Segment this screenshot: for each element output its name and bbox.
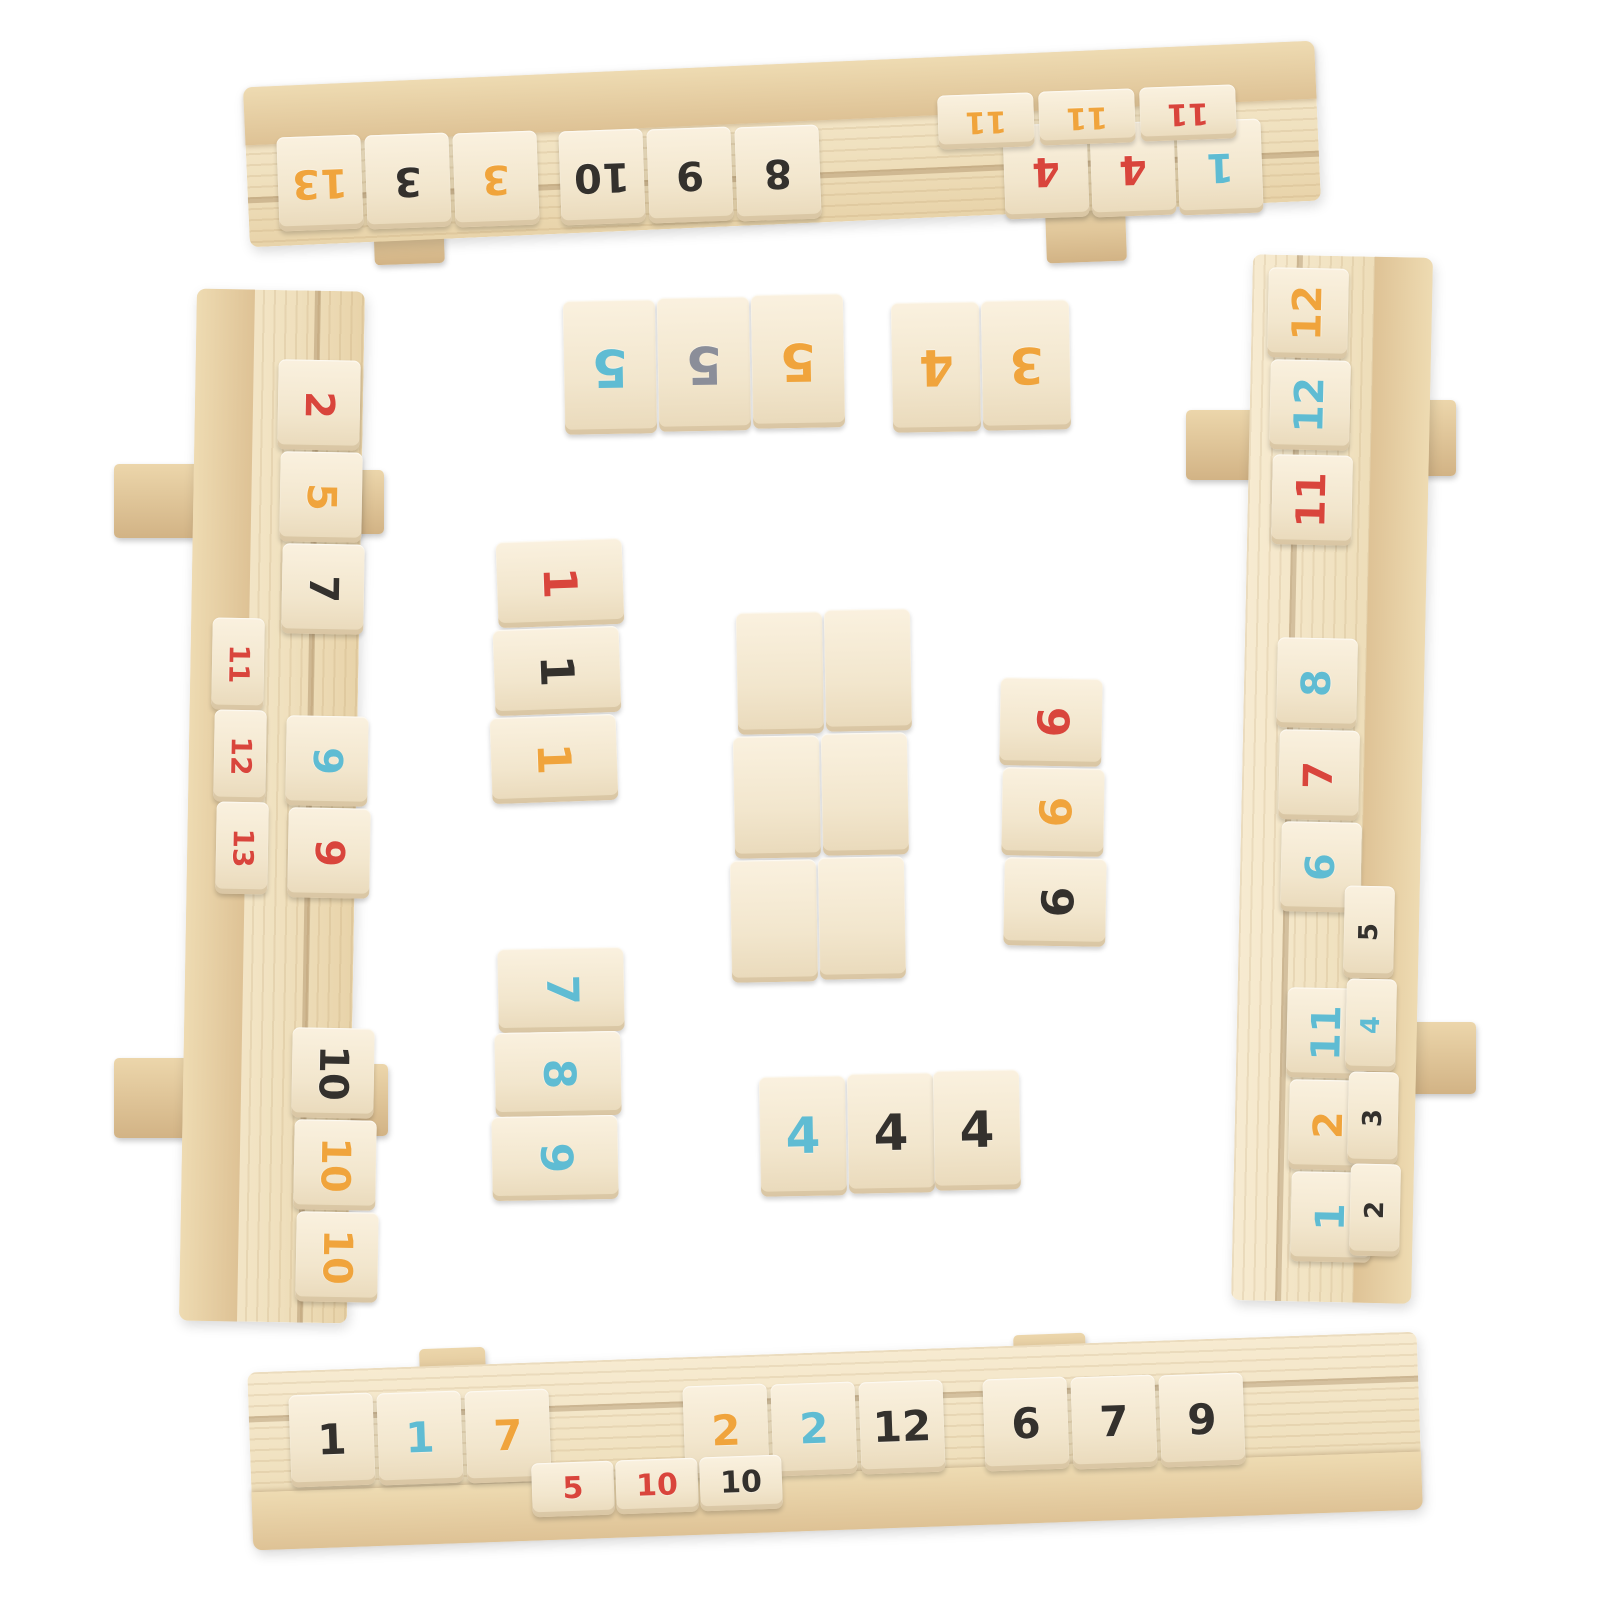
tile-blank-center-group-blank <box>733 735 821 858</box>
tile-2-left-rack-row: 2 <box>277 359 361 450</box>
tile-9-center-group-nines: 9 <box>1003 857 1107 947</box>
tile-number: 10 <box>720 1467 763 1498</box>
tile-number: 11 <box>1066 101 1109 132</box>
tile-10-bottom-rack-ledge: 10 <box>699 1455 783 1512</box>
tile-number: 6 <box>1301 853 1342 882</box>
tile-number: 3 <box>393 161 422 202</box>
tile-2-right-rack-side: 2 <box>1349 1163 1401 1256</box>
tile-9-bottom-rack-row: 9 <box>1158 1373 1245 1468</box>
tile-number: 5 <box>685 338 722 391</box>
tile-number: 9 <box>1033 886 1078 917</box>
tile-11-left-rack-side: 11 <box>211 618 265 711</box>
tile-9-center-group-seven-eight-nine: 9 <box>491 1115 618 1201</box>
tile-12-bottom-rack-row: 12 <box>858 1380 945 1475</box>
tile-number: 4 <box>873 1108 909 1159</box>
tile-number: 7 <box>493 1415 524 1458</box>
tile-9-center-group-nines: 9 <box>999 677 1103 767</box>
tile-number: 1 <box>1311 1203 1352 1232</box>
tile-12-right-rack-row: 12 <box>1269 359 1351 451</box>
tile-number: 13 <box>228 828 257 867</box>
tile-5-bottom-rack-ledge: 5 <box>531 1461 615 1518</box>
tile-number: 8 <box>1297 669 1338 698</box>
tile-blank-center-group-blank <box>730 859 818 982</box>
tile-number: 9 <box>1029 706 1074 737</box>
tile-4-center-group-fours: 4 <box>847 1072 935 1193</box>
tile-number: 4 <box>1358 1016 1384 1035</box>
tile-number: 5 <box>779 335 816 388</box>
tile-number: 11 <box>1291 472 1332 528</box>
tile-number: 8 <box>536 1058 581 1089</box>
tile-number: 3 <box>1008 340 1044 391</box>
tile-7-bottom-rack-row: 7 <box>1070 1375 1157 1470</box>
tile-7-right-rack-row: 7 <box>1278 729 1360 821</box>
tile-3-center-group-four-three: 3 <box>981 299 1071 431</box>
tile-7-left-rack-row: 7 <box>281 543 365 634</box>
tile-number: 12 <box>872 1405 932 1449</box>
tile-number: 10 <box>313 1045 354 1101</box>
tile-number: 1 <box>405 1417 436 1460</box>
tile-9-left-rack-row: 9 <box>285 715 369 806</box>
tile-number: 1 <box>536 566 583 600</box>
tile-number: 12 <box>226 736 255 775</box>
tile-number: 1 <box>317 1419 348 1462</box>
tile-number: 10 <box>636 1470 679 1501</box>
tile-number: 13 <box>291 162 348 204</box>
tile-4-center-group-fours: 4 <box>759 1075 847 1196</box>
tile-number: 6 <box>1011 1403 1042 1446</box>
tile-6-bottom-rack-row: 6 <box>982 1377 1069 1472</box>
tile-number: 10 <box>315 1137 356 1193</box>
tile-5-center-group-fives: 5 <box>751 293 845 429</box>
tile-number: 2 <box>1309 1111 1350 1140</box>
tile-4-right-rack-side: 4 <box>1345 978 1397 1071</box>
tile-11-top-rack-ledge: 11 <box>937 92 1035 149</box>
tile-5-right-rack-side: 5 <box>1343 885 1395 978</box>
tile-3-right-rack-side: 3 <box>1347 1071 1399 1164</box>
tile-number: 4 <box>1031 151 1060 192</box>
tile-number: 5 <box>301 483 341 512</box>
tile-number: 2 <box>711 1410 742 1453</box>
tile-11-top-rack-ledge: 11 <box>1139 84 1237 141</box>
tile-blank-center-group-blank <box>821 732 909 855</box>
tile-number: 9 <box>1031 796 1076 827</box>
tile-number: 9 <box>1187 1399 1218 1442</box>
tile-number: 5 <box>562 1474 584 1505</box>
tile-13-left-rack-side: 13 <box>215 802 269 895</box>
tile-11-top-rack-ledge: 11 <box>1038 88 1136 145</box>
tile-8-right-rack-row: 8 <box>1276 637 1358 729</box>
tile-number: 4 <box>785 1111 821 1162</box>
tile-9-left-rack-row: 9 <box>287 807 371 898</box>
tile-number: 11 <box>1167 97 1210 128</box>
tile-3-top-rack-row: 3 <box>364 133 451 230</box>
tile-blank-center-group-blank <box>818 856 906 979</box>
tile-number: 4 <box>918 342 954 393</box>
tile-11-right-rack-row: 11 <box>1271 454 1353 546</box>
tile-number: 9 <box>675 155 704 196</box>
tile-number: 4 <box>1118 149 1147 190</box>
tile-5-center-group-fives: 5 <box>657 296 751 432</box>
tile-number: 3 <box>481 159 510 200</box>
tile-10-bottom-rack-ledge: 10 <box>615 1458 699 1515</box>
tile-number: 8 <box>763 153 792 194</box>
tile-number: 3 <box>1360 1109 1386 1128</box>
tile-1-center-group-ones: 1 <box>496 538 625 628</box>
tile-number: 9 <box>533 1142 578 1173</box>
tile-number: 12 <box>1289 377 1330 433</box>
tile-number: 11 <box>965 105 1008 136</box>
tile-blank-center-group-blank <box>824 608 912 731</box>
tile-3-top-rack-row: 3 <box>452 131 539 228</box>
tile-4-center-group-four-three: 4 <box>891 301 981 433</box>
tile-1-center-group-ones: 1 <box>493 626 622 716</box>
tile-number: 5 <box>591 341 628 394</box>
tile-number: 7 <box>539 974 584 1005</box>
tile-number: 7 <box>303 575 343 604</box>
tile-number: 9 <box>309 839 349 868</box>
tile-8-top-rack-row: 8 <box>734 125 821 222</box>
tile-number: 11 <box>1306 1005 1347 1061</box>
tile-number: 5 <box>1356 923 1382 942</box>
wood-foot <box>114 464 200 538</box>
tile-number: 12 <box>1287 285 1328 341</box>
tile-9-top-rack-row: 9 <box>646 127 733 224</box>
tile-8-center-group-seven-eight-nine: 8 <box>494 1031 621 1117</box>
tile-number: 7 <box>1099 1401 1130 1444</box>
tile-13-top-rack-row: 13 <box>276 135 363 232</box>
tile-12-left-rack-side: 12 <box>213 710 267 803</box>
tile-number: 2 <box>799 1408 830 1451</box>
rummikub-game-photo: 1333109844111111125799101010111213121211… <box>0 0 1600 1600</box>
tile-4-center-group-fours: 4 <box>933 1069 1021 1190</box>
tile-number: 9 <box>307 747 347 776</box>
tile-5-center-group-fives: 5 <box>563 299 657 435</box>
tile-10-left-rack-row: 10 <box>295 1211 379 1302</box>
tile-10-left-rack-row: 10 <box>291 1027 375 1118</box>
tile-number: 10 <box>573 156 630 198</box>
tile-blank-center-group-blank <box>736 611 824 734</box>
tile-2-bottom-rack-row: 2 <box>770 1382 857 1477</box>
tile-1-bottom-rack-row: 1 <box>376 1391 463 1486</box>
tile-10-left-rack-row: 10 <box>293 1119 377 1210</box>
tile-9-center-group-nines: 9 <box>1001 767 1105 857</box>
tile-number: 7 <box>1299 761 1340 790</box>
tile-12-right-rack-row: 12 <box>1267 267 1349 359</box>
tile-number: 1 <box>530 742 577 776</box>
tile-number: 2 <box>299 391 339 420</box>
tile-1-bottom-rack-row: 1 <box>288 1393 375 1488</box>
tile-number: 11 <box>224 644 253 683</box>
tile-5-left-rack-row: 5 <box>279 451 363 542</box>
tile-10-top-rack-row: 10 <box>558 129 645 226</box>
tile-number: 4 <box>959 1105 995 1156</box>
tile-number: 1 <box>533 654 580 688</box>
tile-1-center-group-ones: 1 <box>490 714 619 804</box>
tile-number: 2 <box>1362 1201 1388 1220</box>
tile-number: 10 <box>317 1229 358 1285</box>
tile-number: 1 <box>1205 147 1234 188</box>
tile-7-center-group-seven-eight-nine: 7 <box>497 947 624 1033</box>
